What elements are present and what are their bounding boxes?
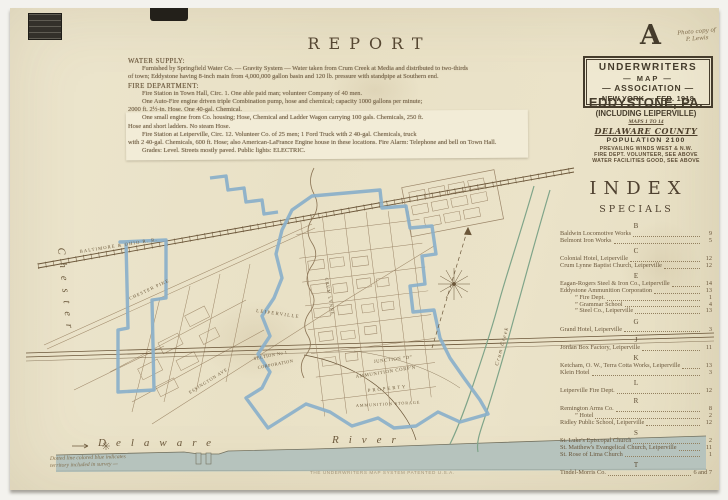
index-entry-name: Klein Hotel [560,370,590,377]
index-section-letter: C [560,247,712,255]
dotted-leader [592,375,700,376]
report-line: WATER SUPPLY: [128,57,564,65]
report-line: One Auto-Fire engine driven triple Combi… [128,98,564,106]
index-subtitle: SPECIALS [552,204,718,215]
index-entry: Ridley Public School, Leiperville12 [560,420,712,427]
report-line: 2000 ft. 2½-in. Hose. One 40-gal. Chemic… [128,106,564,114]
index-section-letter: S [560,429,712,437]
index-entry-page: 12 [702,263,712,270]
index-entry-name: Jordan Box Factory, Leiperville [560,345,640,352]
map-label: Delaware [97,437,221,449]
city-title: EDDYSTONE, PA. [576,95,716,110]
index-entry: Belmont Iron Works5 [560,238,712,245]
index-section-letter: T [560,461,712,469]
index-entry-name: ” Steel Co., Leiperville [575,308,633,315]
dotted-leader [664,268,700,269]
dotted-leader [617,393,700,394]
index-entry-page: 12 [702,388,712,395]
index-section-letter: J [560,336,712,344]
index-entry-name: Eddystone Ammunition Corporation [560,288,652,295]
index-entry-name: Belmont Iron Works [560,238,612,245]
index-entry: Klein Hotel3 [560,370,712,377]
index-entry-page: 5 [702,238,712,245]
dotted-leader [614,243,701,244]
index-entry-name: Tindel-Morris Co. [560,470,606,477]
report-line: FIRE DEPARTMENT: [128,82,564,90]
publisher-line: UNDERWRITERS [588,62,708,73]
index-entry-page: 6 and 7 [693,470,712,477]
index-entry: Crum Lynne Baptist Church, Leiperville12 [560,263,712,270]
dotted-leader [679,450,700,451]
population-line: POPULATION 2100 [576,137,716,144]
dotted-leader [672,286,700,287]
report-body: WATER SUPPLY:Furnished by Springfield Wa… [128,57,564,155]
index-panel: INDEX SPECIALS BBaldwin Locomotive Works… [552,178,718,477]
index-entry-page: 3 [702,370,712,377]
report-line: One small engine from Co. housing; Hose,… [128,114,564,122]
publisher-line: — MAP — [588,74,708,83]
report-title: REPORT [250,34,480,53]
publisher-line: — ASSOCIATION — [588,83,708,93]
index-entry-page: 13 [702,308,712,315]
index-title: INDEX [552,178,718,199]
index-entry-name: Leiperville Fire Dept. [560,388,615,395]
crum-creek [450,186,550,452]
map-label: BALTIMORE & OHIO R. R. [79,237,157,254]
scanned-map-sheet: REPORT WATER SUPPLY:Furnished by Springf… [0,0,728,500]
flow-arrow-icon [72,444,88,448]
report-line: Fire Station in Town Hall, Circ. 1. One … [128,90,564,98]
dotted-leader [633,236,700,237]
report-line: with 2 40-gal. Chemicals, 600 ft. Hose; … [128,139,564,147]
dotted-leader [646,425,700,426]
index-entry: Grand Hotel, Leiperville3 [560,327,712,334]
index-section-letter: E [560,272,712,280]
index-entry-name: Ridley Public School, Leiperville [560,420,644,427]
survey-note: Dotted line colored blue indicatesterrit… [50,454,126,469]
dotted-leader [608,475,692,476]
report-line: of town; Eddystone having 8-inch main fr… [128,73,564,81]
index-entry: Leiperville Fire Dept.12 [560,388,712,395]
library-label [28,13,62,40]
map-label: AMMUNITION STORAGE [356,400,421,408]
index-section-letter: R [560,397,712,405]
printer-imprint: THE UNDERWRITERS MAP SYSTEM PATENTED U.S… [310,470,455,475]
city-subtitle: (INCLUDING LEIPERVILLE) [576,109,716,118]
index-section-letter: L [560,379,712,387]
maps-note: MAPS 1 TO 14 [576,119,716,125]
map-label: ESSINGTON AVE. [188,366,230,395]
map-label: AMMUNITION CORP'N [356,366,417,380]
binder-tab [150,8,188,21]
index-entry-name: Crum Lynne Baptist Church, Leiperville [560,263,662,270]
report-line: Hose and short ladders. No steam Hose. [128,123,564,131]
index-entry-name: Grand Hotel, Leiperville [560,327,622,334]
sheet-letter: A [640,20,661,51]
dotted-leader [625,306,700,307]
county-title: DELAWARE COUNTY [576,126,716,136]
index-entry-page: 11 [702,345,712,352]
index-entry: ” Steel Co., Leiperville13 [560,308,712,315]
dotted-leader [625,456,700,457]
index-entry: St. Rose of Lima Church1 [560,452,712,459]
index-entry-page: 3 [702,327,712,334]
index-entry: Tindel-Morris Co.6 and 7 [560,470,712,477]
index-section-letter: B [560,222,712,230]
dotted-leader [654,293,700,294]
dotted-leader [635,313,700,314]
index-section-letter: G [560,318,712,326]
dotted-leader [642,350,700,351]
dotted-leader [616,411,700,412]
index-entry-page: 1 [702,452,712,459]
map-label: CRUM LYNNE [324,277,336,315]
index-entry-page: 12 [702,420,712,427]
map-label: Chester [55,247,75,336]
index-list: BBaldwin Locomotive Works9Belmont Iron W… [552,222,718,477]
report-line: Furnished by Springfield Water Co. — Gra… [128,65,564,73]
dotted-leader [624,331,700,332]
index-entry: Jordan Box Factory, Leiperville11 [560,345,712,352]
index-section-letter: K [560,354,712,362]
map-label: River [331,434,406,446]
index-entry-name: St. Rose of Lima Church [560,452,623,459]
dotted-leader [682,368,700,369]
report-line: Fire Station at Leiperville, Circ. 12. V… [128,131,564,139]
